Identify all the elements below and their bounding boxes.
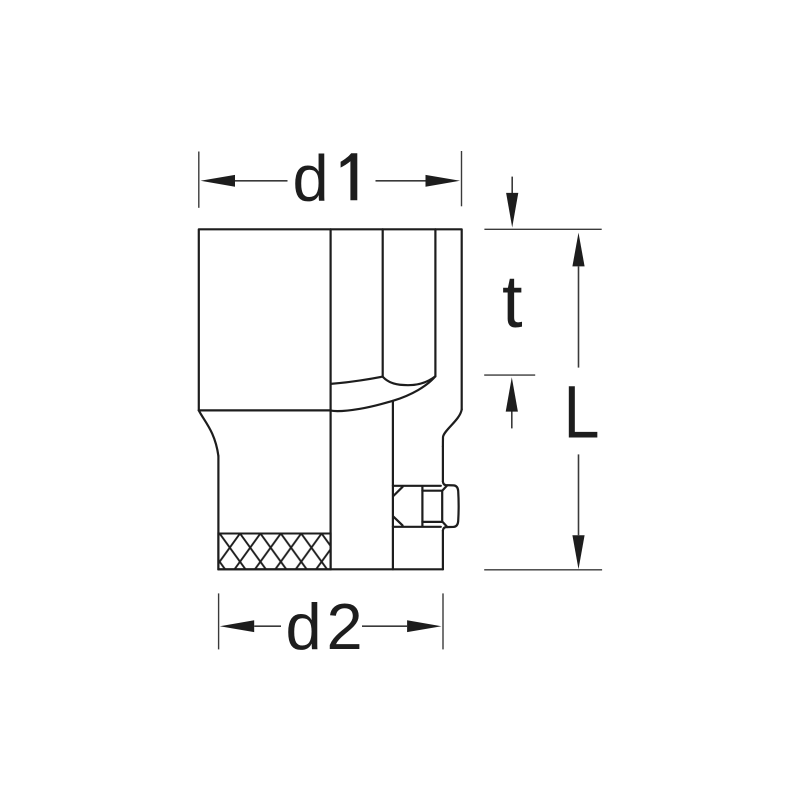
svg-text:t: t: [502, 260, 523, 343]
svg-text:d: d: [293, 142, 329, 215]
svg-text:2: 2: [327, 590, 363, 663]
svg-text:L: L: [564, 371, 600, 454]
svg-text:d: d: [286, 590, 322, 663]
